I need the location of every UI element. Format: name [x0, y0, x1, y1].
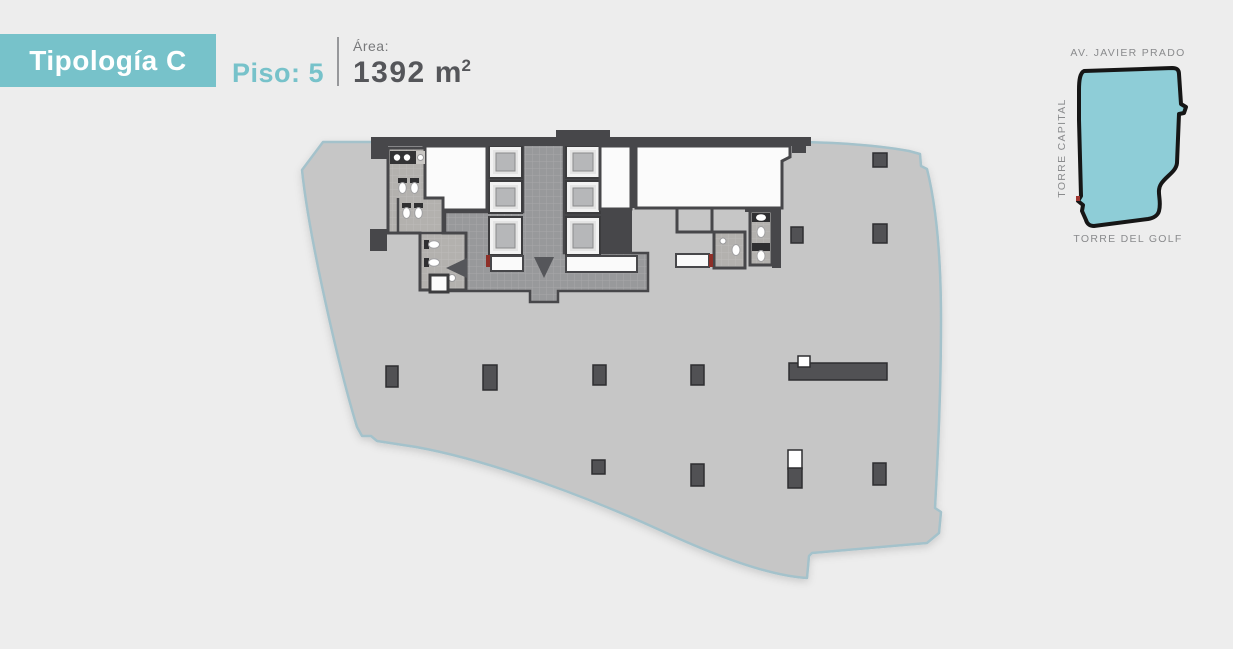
toilet-icon [402, 203, 411, 219]
floor-plan [280, 120, 960, 600]
column [592, 460, 605, 474]
elevator-shaft [489, 146, 522, 178]
elevator-shaft [566, 217, 600, 255]
header-divider [337, 37, 339, 86]
column [483, 365, 497, 390]
door-marker [709, 254, 713, 267]
area-block: Área: 1392m2 [353, 38, 471, 90]
column [873, 463, 886, 485]
access-box [430, 275, 448, 292]
minimap-footprint [1078, 68, 1186, 226]
toilet-icon [757, 251, 765, 262]
elevator-shaft [566, 146, 600, 178]
area-unit: m2 [435, 56, 471, 89]
toilet-icon [410, 178, 419, 194]
area-label: Área: [353, 38, 471, 54]
service-rooms [424, 146, 790, 210]
door-column-top [788, 450, 802, 469]
column [593, 365, 606, 385]
wall-bar-cap [798, 356, 810, 367]
typology-badge: Tipología C [0, 34, 216, 87]
building-minimap [1040, 60, 1216, 236]
column [386, 366, 398, 387]
door-column [788, 468, 802, 488]
toilet-icon [424, 258, 440, 267]
column [691, 464, 704, 486]
typology-label: Tipología C [29, 45, 186, 77]
toilet-icon [757, 227, 765, 238]
elevator-shaft [489, 181, 522, 213]
minimap-location-marker [1076, 196, 1080, 201]
elevator-shaft [489, 217, 522, 255]
toilet-icon [732, 245, 740, 256]
sink-icon [394, 154, 400, 160]
room [600, 146, 631, 209]
sink-icon [756, 214, 766, 221]
column [873, 224, 887, 243]
area-exponent: 2 [461, 56, 470, 75]
room [636, 146, 790, 208]
column [691, 365, 704, 385]
column [791, 227, 803, 243]
sink-icon [720, 238, 726, 244]
area-value: 1392m2 [353, 56, 471, 90]
toilet-icon [424, 240, 440, 249]
door-marker [486, 255, 490, 267]
elevator-shaft [566, 181, 600, 213]
toilet-icon [414, 203, 423, 219]
toilet-icon [398, 178, 407, 194]
floor-label: Piso: 5 [232, 58, 324, 89]
sink-icon [404, 154, 410, 160]
sink-icon [418, 155, 424, 161]
column [873, 153, 887, 167]
sink-icon [449, 275, 456, 282]
minimap-street-label: AV. JAVIER PRADO [1040, 47, 1216, 59]
area-number: 1392 [353, 56, 426, 89]
